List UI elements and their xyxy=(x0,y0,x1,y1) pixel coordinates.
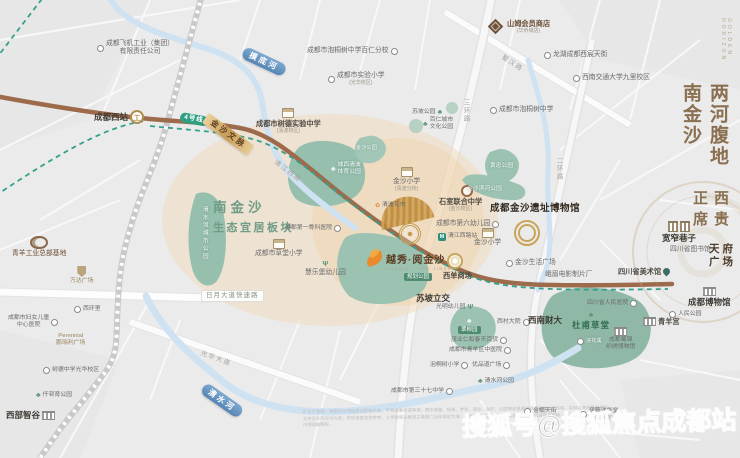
location-dot-icon xyxy=(74,306,81,313)
sprout-icon: Ψ xyxy=(467,304,473,311)
poi-huanhuaxi: 浣花溪 xyxy=(577,338,602,345)
map-label-text: 二环路 xyxy=(554,157,562,181)
map-label-text: 广场 xyxy=(709,256,736,269)
building-icon xyxy=(42,411,55,420)
station-chengdu-west: 成都西站工 xyxy=(94,110,144,124)
poi-wanda-plaza: 万达广场 xyxy=(70,266,94,285)
poi-perennial-plaza: Perennial鹏瑞利广场 xyxy=(56,333,85,348)
poi-chengdu-museum: 成都博物馆 xyxy=(688,287,731,308)
road-erhuan: 二环路 xyxy=(554,157,562,181)
map-label-text: 成都市第三十七中学 xyxy=(391,388,444,395)
slogan-en: GOLDEN HORIZON xyxy=(678,18,732,79)
map-label-text: 峨眉电影制片厂 xyxy=(545,271,593,279)
tree-icon: ♣ xyxy=(423,121,428,128)
location-map: 越秀·阅金沙 YUEXIU · YUE JINSHA 南金沙 生态宜居板块 成都… xyxy=(0,0,740,458)
park-qiancun: ♣仟邨育公园 xyxy=(36,392,72,399)
location-dot-icon xyxy=(97,45,104,52)
location-dot-icon xyxy=(461,362,468,369)
map-label-text: 翠柳园 xyxy=(458,326,481,334)
poi-no37-middle: 成都市第三十七中学 xyxy=(391,388,453,395)
poi-longhu-tianjie: 龙湖成都西宸天街 xyxy=(544,51,607,59)
map-label-text: 优品道广场 xyxy=(472,362,501,369)
school-icon xyxy=(401,167,413,177)
map-label-text: 成都市泡桐树中学百仁分校 xyxy=(307,47,389,55)
map-label-text: 金沙小学 xyxy=(474,239,501,247)
map-label-text: 泡桐树小学 xyxy=(430,362,459,369)
location-dot-icon xyxy=(391,48,398,55)
map-label-subtext: (清波分校) xyxy=(393,186,420,192)
location-dot-icon xyxy=(328,76,335,83)
map-canvas xyxy=(0,0,740,458)
map-label-text: 西部智谷 xyxy=(6,410,40,421)
poi-jinsha-site-museum: 成都金沙遗址博物馆 xyxy=(490,203,580,215)
location-dot-icon xyxy=(446,388,453,395)
sprout-icon: Ψ xyxy=(323,261,329,268)
location-dot-icon xyxy=(334,225,341,232)
map-label-text: 万达广场 xyxy=(70,278,94,285)
map-label-text: 成都金沙遗址博物馆 xyxy=(490,203,580,215)
park-dufu-caotang: ♣杜甫草堂 xyxy=(572,312,610,331)
road-riyue-expressway: 日月大道快速路 xyxy=(201,290,264,302)
map-label-text: 四川省美术馆 xyxy=(618,267,661,276)
building-icon xyxy=(703,287,716,296)
qingyang-logo-icon xyxy=(30,236,48,249)
poi-jinsha-primary: 金沙小学 xyxy=(474,228,501,247)
map-label-text: 织绣博物馆 xyxy=(606,344,635,351)
park-jinsha: 金沙公园 xyxy=(356,145,377,152)
map-label-text: 浣花溪 xyxy=(586,338,602,345)
tree-icon: ♣ xyxy=(467,318,472,325)
poi-shude-exp-middle: 成都市树德实验中学(清波校区) xyxy=(256,108,321,134)
map-label-text: 西村大院 xyxy=(497,319,521,326)
map-label-text: 三环路 xyxy=(461,99,469,123)
location-dot-icon xyxy=(500,337,507,344)
map-label-text: 黄忠公园 xyxy=(490,163,513,170)
map-label-text: 成都市青羊区中医院 xyxy=(449,347,502,354)
poi-qingyang-industrial-hq: 青羊工业总部基地 xyxy=(12,236,66,258)
project-logo-bird-icon xyxy=(365,251,385,268)
poi-emei-film-studio: 峨眉电影制片厂 xyxy=(545,271,593,279)
map-label-text: 金沙生活广场 xyxy=(515,259,556,267)
railway-station-icon: 工 xyxy=(130,110,144,124)
park-qingshuihe: ♣清水河公园 xyxy=(478,378,514,385)
tree-icon: ♣ xyxy=(478,378,483,385)
poi-jinsha-life-plaza: 金沙生活广场 xyxy=(506,259,556,267)
road-sanhuan: 三环路 xyxy=(461,99,469,123)
map-label-subtext: (光华校区) xyxy=(337,80,385,86)
map-label-text: 成都市泡桐树中学 xyxy=(499,106,553,114)
map-label-text: 成都西站 xyxy=(94,112,128,123)
poi-shude-guanghua: 树德中学光华校区 xyxy=(43,367,99,374)
poi-guangming-kindergarten: 光明幼儿园Ψ xyxy=(436,304,473,311)
map-label-subtext: (清波校区) xyxy=(256,128,321,134)
poi-qingyang-tcm-hospital: 成都市青羊区中医院 xyxy=(449,347,511,354)
poi-supo-interchange: 苏坡立交 xyxy=(416,293,450,304)
zone-caption: 南金沙 生态宜居板块 xyxy=(213,196,294,235)
location-dot-icon xyxy=(669,311,676,318)
poi-jiaotong-univ: 西南交通大学九里校区 xyxy=(573,74,650,82)
park-chengxi-sports: ♣城西清波体育公园 xyxy=(331,162,361,176)
poi-sichuan-art-museum: 四川省美术馆 xyxy=(618,267,670,276)
map-label-text: 清水河城市公园 xyxy=(200,206,207,261)
poi-paotongshu-bairen: 成都市泡桐树中学百仁分校 xyxy=(307,47,398,55)
zone-line1: 南金沙 xyxy=(213,196,294,216)
tree-icon: ♣ xyxy=(36,392,41,399)
flower-icon: ✿ xyxy=(375,203,380,209)
poi-jinsha-primary-qingbo: 金沙小学(清波分校) xyxy=(393,167,420,193)
map-label-text: 仟邨育公园 xyxy=(43,392,72,399)
map-label-text: 树德中学光华校区 xyxy=(52,367,99,374)
map-label-text: 慧乐堡幼儿园 xyxy=(305,269,346,277)
poi-qingbo-flower-market: ✿清波花市 xyxy=(375,202,406,209)
map-label-text: 金沙滨河公园 xyxy=(467,186,502,193)
park-supo: 苏坡公园♣ xyxy=(412,109,442,116)
poi-youpindao-plaza: 优品道广场 xyxy=(472,362,510,369)
location-dot-icon xyxy=(43,367,50,374)
map-label-text: 西南财大 xyxy=(528,315,562,326)
poi-xidan-mall: 西单商场 xyxy=(443,271,472,280)
location-dot-icon xyxy=(573,75,580,82)
poi-women-children-hospital: 成都市妇女儿童中心医院 xyxy=(8,315,58,330)
map-label-text: 苏坡立交 xyxy=(416,293,450,304)
map-label-text: 规划公园 xyxy=(404,273,432,281)
map-label-text: 鹏瑞利广场 xyxy=(56,340,85,347)
school-icon xyxy=(273,239,285,249)
poi-maoye-department: 茂业仁和春天百货 xyxy=(451,337,507,344)
tree-icon: ♣ xyxy=(331,166,336,173)
park-qingshuihe-city: 清水河城市公园 xyxy=(200,206,207,261)
location-dot-icon xyxy=(503,362,510,369)
map-label-text: 日月大道快速路 xyxy=(201,290,264,302)
poi-xibu-zhigu: 西部智谷 xyxy=(6,410,55,421)
map-label-subtext: (金沙校区) xyxy=(439,206,482,212)
park-jinsha-binhe: 金沙滨河公园 xyxy=(467,186,502,193)
park-cuiliu: ♣翠柳园 xyxy=(458,318,481,334)
metro-icon: M xyxy=(438,233,446,241)
sams-club-logo-icon xyxy=(488,19,504,35)
location-dot-icon xyxy=(506,260,513,267)
jinsha-gold-ring-icon xyxy=(514,220,540,246)
map-label-text: 成都市草堂小学 xyxy=(255,250,303,258)
map-label-text: 金沙公园 xyxy=(356,145,377,152)
project-marker: 越秀·阅金沙 YUEXIU · YUE JINSHA xyxy=(366,251,456,271)
map-label-text: 成都博物馆 xyxy=(688,297,731,308)
poi-paotongshu-middle: 成都市泡桐树中学 xyxy=(490,106,553,114)
poi-shiyan-primary: 成都市实验小学(光华校区) xyxy=(328,72,385,87)
map-label-text: 清波花市 xyxy=(382,202,406,209)
location-dot-icon xyxy=(577,338,584,345)
map-label-text: 人民公园 xyxy=(678,311,702,318)
location-dot-icon xyxy=(630,300,637,307)
slogan-vertical: GOLDEN HORIZON 两河腹地南金沙 西贵正席 xyxy=(678,18,732,248)
station-qingjiangxilu: M清江西路站 xyxy=(438,233,477,241)
map-label-text: 文化公园 xyxy=(430,124,454,131)
park-planned: 规划公园 xyxy=(404,273,432,281)
slogan-sub: 西贵正席 xyxy=(678,190,732,248)
slogan-main: 两河腹地南金沙 xyxy=(678,83,732,185)
map-label-text: 成都市树德实验中学 xyxy=(256,119,321,128)
map-label-text: 成都第一骨科医院 xyxy=(285,225,332,232)
poi-sichuan-peoples-hospital: 四川省人民医院 xyxy=(587,300,637,307)
building-icon xyxy=(643,317,656,326)
project-name: 越秀·阅金沙 xyxy=(386,251,456,266)
map-label-text: 中心医院 xyxy=(8,322,49,329)
location-dot-icon xyxy=(492,221,499,228)
map-label-subtext: (华侨城店) xyxy=(507,28,550,34)
park-huangzhong: 黄忠公园 xyxy=(490,163,513,170)
map-label-text: 四川省人民医院 xyxy=(587,300,628,307)
poi-caotang-primary: 成都市草堂小学 xyxy=(255,239,303,258)
poi-orthopedic-hospital: 成都第一骨科医院 xyxy=(285,225,341,232)
park-renmin: 人民公园 xyxy=(669,311,702,318)
school-icon xyxy=(282,108,294,118)
map-label-text: 有限责任公司 xyxy=(106,48,174,56)
plaza-crest-icon xyxy=(77,266,86,277)
watermark: 搜狐号@搜狐焦点成都站 xyxy=(461,400,736,443)
building-icon xyxy=(614,327,627,336)
location-dot-icon xyxy=(490,107,497,114)
map-label-text: 茂业仁和春天百货 xyxy=(451,337,498,344)
map-label-text: 西单商场 xyxy=(443,271,472,280)
map-label-text: 清水河公园 xyxy=(485,378,514,385)
poi-chengfei: 成都飞机工业（集团）有限责任公司 xyxy=(97,40,174,57)
poi-huilebao-kindergarten: Ψ慧乐堡幼儿园 xyxy=(305,261,346,277)
poi-shishi-united: 石室联合中学(金沙校区) xyxy=(439,197,482,212)
map-label-text: 西环里 xyxy=(83,306,101,313)
location-dot-icon xyxy=(544,52,551,59)
map-label-text: 光明幼儿园 xyxy=(436,304,465,311)
school-icon xyxy=(482,228,494,238)
map-label-text: 山姆会员商店 xyxy=(507,19,550,28)
poi-paotongshu-primary: 泡桐树小学 xyxy=(430,362,468,369)
map-pin-icon xyxy=(662,267,672,277)
map-label-text: 体育公园 xyxy=(338,169,361,176)
tree-icon: ♣ xyxy=(438,109,443,116)
poi-xihuanli: 西环里 xyxy=(74,306,101,313)
map-label-text: 杜甫草堂 xyxy=(572,320,610,331)
map-label-text: 龙湖成都西宸天街 xyxy=(553,51,607,59)
project-name-en: YUEXIU · YUE JINSHA xyxy=(386,266,456,271)
map-label-text: 石室联合中学 xyxy=(439,197,482,206)
zone-line2: 生态宜居板块 xyxy=(213,219,294,235)
sun-bird-ring-icon xyxy=(399,223,421,245)
poi-shujin-museum: 成都蜀锦织绣博物馆 xyxy=(606,327,635,352)
modi-river-south xyxy=(528,60,550,290)
map-label-text: 青羊工业总部基地 xyxy=(12,250,66,258)
map-label-text: 西南交通大学九里校区 xyxy=(582,74,650,82)
poi-sams-club: 山姆会员商店(华侨城店) xyxy=(486,19,550,34)
location-dot-icon xyxy=(504,347,511,354)
map-label-text: 苏坡公园 xyxy=(412,109,436,116)
poi-xicun-dayuan: 西村大院 xyxy=(497,319,530,326)
poi-swufe: 西南财大 xyxy=(528,315,562,326)
park-bairen-culture: ♣百仁城市文化公园 xyxy=(423,117,453,132)
tree-icon: ♣ xyxy=(589,312,594,319)
location-dot-icon xyxy=(51,319,58,326)
